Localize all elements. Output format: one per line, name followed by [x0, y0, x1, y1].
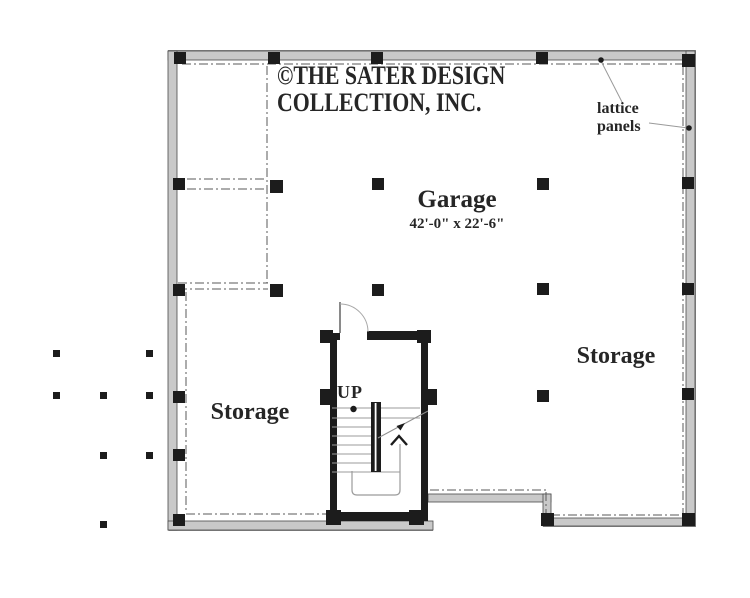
copyright-line-2: COLLECTION, INC. [277, 89, 505, 116]
pier-footing [53, 350, 60, 357]
column-post [173, 449, 185, 461]
column-post [536, 52, 548, 64]
copyright-line-1: ©THE SATER DESIGN [277, 62, 505, 89]
room-dimensions-garage: 42'-0" x 22'-6" [377, 216, 537, 233]
column-post [270, 284, 283, 297]
pier-footing [146, 350, 153, 357]
door-swing-arc [340, 304, 368, 332]
room-label-garage: Garage [377, 186, 537, 214]
floor-plan-canvas: ©THE SATER DESIGN COLLECTION, INC. latti… [0, 0, 750, 598]
lattice-leader-dot [686, 125, 692, 131]
wall-notch-horizontal [428, 494, 551, 502]
lattice-leader-dot [598, 57, 604, 63]
pier-footing [146, 452, 153, 459]
pier-footing [146, 392, 153, 399]
stair-pilaster [326, 510, 341, 525]
column-post [537, 178, 549, 190]
column-post [372, 284, 384, 296]
stair-leader-arrowhead [397, 423, 406, 431]
pier-footing [100, 392, 107, 399]
column-post [173, 514, 185, 526]
column-post [173, 178, 185, 190]
column-post [174, 52, 186, 64]
column-post [682, 54, 695, 67]
column-post [682, 283, 694, 295]
stair-treads [332, 402, 428, 495]
room-label-storage-left: Storage [180, 399, 320, 426]
stairwell-door [340, 302, 368, 333]
column-post [270, 180, 283, 193]
lattice-leader-line [601, 61, 622, 102]
pier-footings [53, 350, 153, 528]
wall-top [168, 51, 695, 60]
lattice-note-line-2: panels [597, 118, 641, 136]
stair-wall-right [421, 333, 428, 520]
up-direction-chevron [391, 436, 407, 445]
room-label-storage-right: Storage [546, 343, 686, 370]
column-post [537, 390, 549, 402]
stair-pilaster [417, 330, 431, 343]
copyright-notice: ©THE SATER DESIGN COLLECTION, INC. [277, 62, 505, 116]
stair-start-dot [350, 406, 356, 412]
stair-pilaster [320, 330, 333, 343]
pier-footing [100, 452, 107, 459]
stair-rail-gap [375, 403, 377, 471]
lattice-leader-line [649, 123, 688, 128]
pier-footing [100, 521, 107, 528]
column-post [541, 513, 554, 526]
lattice-note-line-1: lattice [597, 100, 641, 118]
wall-bottom-right [543, 518, 695, 526]
lattice-panels-note: lattice panels [597, 100, 641, 136]
column-post [682, 388, 694, 400]
wall-bottom-left [168, 521, 433, 530]
column-post [173, 284, 185, 296]
column-post [682, 177, 694, 189]
stair-pilaster [320, 389, 332, 405]
column-post [537, 283, 549, 295]
stair-pilaster [425, 389, 437, 405]
column-post [682, 513, 695, 526]
stair-up-label: UP [337, 382, 363, 403]
pier-footing [53, 392, 60, 399]
stair-pilaster [409, 510, 424, 525]
